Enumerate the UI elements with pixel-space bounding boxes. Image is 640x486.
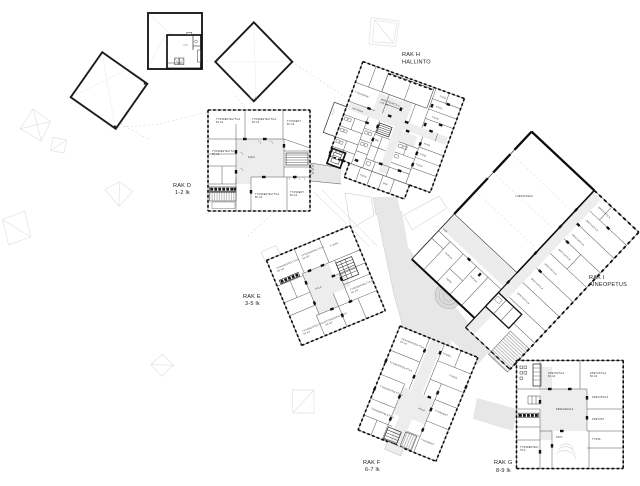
svg-text:HALLINTO: HALLINTO (402, 60, 431, 66)
svg-text:NAYT.: NAYT. (556, 436, 564, 439)
svg-text:TYOSKENTELYTILA: TYOSKENTELYTILA (255, 193, 280, 196)
svg-text:60 m2: 60 m2 (255, 197, 263, 199)
svg-text:KESKUSAULA: KESKUSAULA (556, 408, 574, 411)
svg-text:RAK H: RAK H (402, 52, 420, 58)
svg-text:TYOSKENTELY: TYOSKENTELY (520, 447, 539, 449)
svg-text:AINEOPETUS: AINEOPETUS (589, 282, 627, 288)
svg-text:6-7 lk: 6-7 lk (365, 467, 380, 473)
svg-text:60 m2: 60 m2 (548, 376, 556, 378)
svg-text:OPETUSTILA: OPETUSTILA (590, 372, 607, 375)
svg-text:TYOSKENTELYTILA: TYOSKENTELYTILA (216, 118, 241, 121)
svg-text:3-5 lk: 3-5 lk (245, 301, 260, 307)
svg-text:TYOSKENTELYTILA: TYOSKENTELYTILA (252, 118, 277, 121)
svg-text:TILA: TILA (520, 449, 526, 452)
svg-text:LIIKUNTASALI: LIIKUNTASALI (516, 195, 534, 198)
svg-text:OPETUSTILA: OPETUSTILA (548, 372, 565, 375)
svg-text:RAK E: RAK E (243, 294, 261, 300)
svg-text:TYOSKENT.: TYOSKENT. (287, 121, 302, 123)
svg-text:TYOSK.: TYOSK. (592, 439, 602, 441)
svg-text:OPETUSTILA: OPETUSTILA (592, 396, 609, 399)
svg-text:AULA: AULA (248, 156, 255, 159)
svg-text:60 m2: 60 m2 (212, 154, 220, 156)
svg-text:60 m2: 60 m2 (252, 122, 260, 124)
svg-text:60 m2: 60 m2 (290, 195, 298, 197)
svg-text:RAK I: RAK I (589, 275, 605, 281)
svg-text:1-2 lk: 1-2 lk (175, 190, 190, 196)
svg-text:OPETUST.: OPETUST. (592, 419, 605, 421)
svg-text:RAK D: RAK D (173, 183, 191, 189)
svg-text:TYOSKENT.: TYOSKENT. (290, 192, 305, 194)
svg-text:60 m2: 60 m2 (287, 124, 295, 126)
svg-text:TYOSKENTELYTILA: TYOSKENTELYTILA (212, 150, 237, 153)
svg-text:60 m2: 60 m2 (216, 122, 224, 124)
svg-text:8-9 lk: 8-9 lk (496, 468, 511, 474)
svg-text:VAR: VAR (183, 44, 188, 47)
svg-text:60 m2: 60 m2 (590, 376, 598, 378)
svg-text:RAK F: RAK F (363, 460, 381, 466)
svg-text:RAK G: RAK G (494, 460, 512, 466)
